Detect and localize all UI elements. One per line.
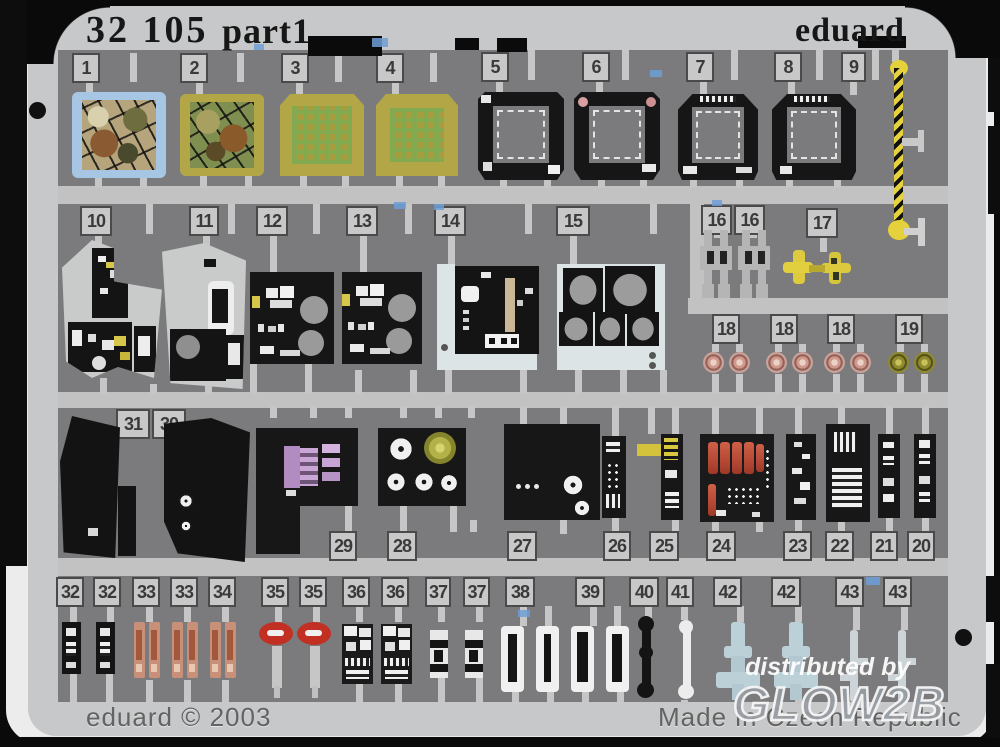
label-37: 37 bbox=[463, 577, 490, 607]
part-40-detail bbox=[637, 682, 654, 698]
blue-speck bbox=[650, 70, 662, 77]
frame-stem bbox=[795, 406, 802, 434]
part-19-detail bbox=[914, 352, 935, 373]
part-27-detail bbox=[560, 472, 586, 498]
part-18c-detail bbox=[824, 352, 845, 373]
part-17-detail bbox=[809, 265, 825, 272]
edge-mark bbox=[986, 664, 1000, 740]
part-16a-detail bbox=[720, 251, 727, 264]
part-14-detail bbox=[461, 286, 479, 302]
brand-logo: eduard bbox=[795, 12, 905, 50]
frame-stem bbox=[345, 406, 352, 418]
part-2-detail bbox=[190, 102, 254, 168]
label-13: 13 bbox=[346, 206, 378, 236]
part-14 bbox=[455, 266, 539, 354]
part-38a bbox=[501, 626, 524, 692]
label-8: 8 bbox=[774, 52, 802, 82]
frame-stem bbox=[834, 180, 841, 188]
frame-stem bbox=[270, 406, 277, 418]
part-11-detail bbox=[204, 259, 216, 267]
part-22-detail bbox=[832, 468, 862, 508]
label-42: 42 bbox=[713, 577, 742, 607]
registration-dot bbox=[29, 102, 46, 119]
part-26-detail bbox=[606, 494, 620, 508]
frame-stem bbox=[560, 406, 567, 424]
frame-stem bbox=[146, 204, 153, 234]
part-41 bbox=[678, 620, 695, 700]
part-36a bbox=[342, 624, 373, 684]
frame-stem bbox=[435, 406, 442, 418]
frame-stem bbox=[356, 606, 363, 622]
part-6 bbox=[574, 92, 660, 180]
label-11: 11 bbox=[189, 206, 219, 236]
part-13-detail bbox=[360, 298, 382, 306]
part-26-detail bbox=[606, 462, 620, 488]
frame-stem bbox=[342, 176, 349, 188]
part-10-detail bbox=[138, 336, 150, 356]
frame-stem bbox=[528, 50, 535, 80]
frame-stem bbox=[400, 506, 407, 532]
part-17-detail bbox=[831, 258, 837, 264]
part-26-detail bbox=[606, 442, 620, 452]
label-12: 12 bbox=[256, 206, 288, 236]
part-24-detail bbox=[726, 486, 760, 504]
part-9-detail bbox=[918, 130, 924, 152]
part-28-detail bbox=[424, 432, 456, 464]
part-36a-detail bbox=[346, 670, 369, 679]
label-20: 20 bbox=[907, 531, 935, 561]
label-18: 18 bbox=[827, 314, 855, 344]
frame-stem bbox=[438, 606, 445, 622]
label-32: 32 bbox=[93, 577, 121, 607]
frame-stem bbox=[799, 374, 806, 394]
label-33: 33 bbox=[132, 577, 160, 607]
part-29b bbox=[256, 506, 300, 554]
frame-stem bbox=[70, 606, 77, 622]
frame-stem bbox=[476, 678, 483, 702]
part-5-detail bbox=[483, 162, 492, 171]
part-14-detail bbox=[505, 278, 515, 332]
part-23-detail bbox=[794, 442, 802, 447]
photo-etch-sheet-photo: 1234567891011121314151616171818181931302… bbox=[0, 0, 1000, 747]
part-13-detail bbox=[358, 324, 366, 330]
part-3-detail bbox=[292, 106, 352, 164]
label-42: 42 bbox=[771, 577, 801, 607]
label-18: 18 bbox=[712, 314, 740, 344]
frame-stem bbox=[222, 680, 229, 702]
frame-stem bbox=[130, 53, 137, 82]
part-7-detail bbox=[736, 167, 752, 173]
part-10 bbox=[62, 240, 162, 378]
part-32b-detail bbox=[100, 662, 110, 668]
part-33a-detail bbox=[151, 630, 157, 660]
part-37b-detail bbox=[469, 650, 478, 662]
part-6-detail bbox=[642, 164, 656, 172]
frame-stem bbox=[525, 204, 532, 234]
part-13-detail bbox=[342, 294, 350, 306]
frame-stem bbox=[396, 176, 403, 188]
label-38: 38 bbox=[505, 577, 535, 607]
part-35b-detail bbox=[312, 686, 318, 698]
part-37b-detail bbox=[465, 640, 483, 648]
part-11 bbox=[162, 243, 246, 389]
blue-speck bbox=[712, 200, 722, 206]
label-14: 14 bbox=[434, 206, 466, 236]
part-25-detail bbox=[664, 438, 678, 460]
frame-stem bbox=[222, 606, 229, 622]
part-35b-detail bbox=[305, 630, 322, 636]
frame-stem bbox=[575, 370, 582, 394]
frame-stem bbox=[146, 606, 153, 622]
part-18b-detail bbox=[792, 352, 813, 373]
label-21: 21 bbox=[870, 531, 898, 561]
frame-stem bbox=[95, 178, 102, 188]
frame-stem bbox=[617, 692, 624, 702]
part-13-detail bbox=[350, 344, 364, 352]
part-21-detail bbox=[883, 494, 894, 502]
label-10: 10 bbox=[80, 206, 112, 236]
part-26 bbox=[602, 436, 626, 518]
edge-mark bbox=[988, 126, 1000, 214]
part-28-detail bbox=[386, 434, 416, 464]
part-30 bbox=[164, 418, 250, 562]
frame-stem bbox=[300, 176, 307, 188]
part-24-detail bbox=[708, 442, 718, 474]
frame-stem bbox=[853, 606, 860, 630]
part-16b-detail bbox=[740, 284, 752, 298]
frame-stem bbox=[582, 692, 589, 702]
part-20-detail bbox=[919, 440, 930, 448]
part-4 bbox=[376, 94, 458, 176]
part-41-detail bbox=[683, 627, 691, 691]
part-40 bbox=[636, 616, 656, 700]
frame-stem bbox=[547, 692, 554, 702]
part-13-detail bbox=[370, 284, 384, 296]
label-43: 43 bbox=[883, 577, 912, 607]
part-25 bbox=[661, 434, 683, 520]
label-19: 19 bbox=[895, 314, 923, 344]
frame-notch bbox=[308, 36, 382, 56]
part-7-detail bbox=[692, 107, 744, 163]
part-24-detail bbox=[744, 442, 754, 474]
part-38b-detail bbox=[544, 634, 551, 682]
part-31b bbox=[118, 486, 136, 556]
part-33a-detail bbox=[136, 664, 142, 672]
part-7-detail bbox=[683, 166, 697, 174]
frame-stem bbox=[886, 406, 893, 434]
part-33a bbox=[134, 622, 161, 680]
part-20 bbox=[914, 434, 936, 518]
part-10-detail bbox=[120, 352, 130, 360]
part-16b-detail bbox=[745, 251, 752, 264]
part-36b-detail bbox=[383, 626, 396, 636]
frame-stem bbox=[788, 80, 795, 95]
part-28 bbox=[378, 428, 466, 506]
label-28: 28 bbox=[387, 531, 417, 561]
part-10-detail bbox=[102, 340, 114, 350]
part-32a-detail bbox=[66, 662, 76, 668]
part-1-detail bbox=[82, 100, 156, 170]
photo-backdrop-top bbox=[0, 0, 1000, 6]
part-29-detail bbox=[322, 458, 340, 467]
frame-stem bbox=[405, 204, 412, 234]
part-7-detail bbox=[700, 96, 736, 102]
part-14-detail bbox=[489, 338, 495, 344]
frame-rail bbox=[58, 558, 948, 576]
label-31: 31 bbox=[116, 409, 150, 439]
part-25a bbox=[637, 444, 662, 456]
part-5-detail bbox=[481, 95, 491, 103]
part-14-detail bbox=[463, 310, 469, 314]
label-40: 40 bbox=[629, 577, 659, 607]
frame-stem bbox=[237, 53, 244, 82]
label-25: 25 bbox=[649, 531, 679, 561]
label-34: 34 bbox=[208, 577, 236, 607]
watermark-glow2b: GLOW2B bbox=[733, 676, 945, 731]
part-8-detail bbox=[780, 166, 792, 174]
label-35: 35 bbox=[261, 577, 289, 607]
part-32b-detail bbox=[100, 642, 110, 656]
blue-speck bbox=[518, 610, 530, 617]
part-34 bbox=[210, 622, 237, 680]
frame-stem bbox=[392, 82, 399, 94]
part-33b-detail bbox=[174, 630, 180, 660]
frame-stem bbox=[345, 506, 352, 532]
frame-stem bbox=[922, 518, 929, 532]
part-10-detail bbox=[110, 270, 120, 278]
part-36b-detail bbox=[384, 658, 409, 666]
part-27 bbox=[504, 424, 600, 520]
label-9: 9 bbox=[841, 52, 866, 82]
part-22 bbox=[826, 424, 870, 522]
blue-speck bbox=[394, 202, 406, 209]
frame-stem bbox=[833, 374, 840, 394]
part-37a-detail bbox=[434, 650, 443, 662]
part-2 bbox=[180, 94, 264, 176]
part-6-detail bbox=[589, 106, 645, 163]
part-23-detail bbox=[802, 454, 810, 459]
part-21-detail bbox=[883, 456, 894, 465]
frame-stem bbox=[598, 180, 605, 188]
frame-stem bbox=[545, 606, 552, 626]
frame-stem bbox=[512, 692, 519, 702]
frame-stem bbox=[360, 236, 367, 274]
part-24-detail bbox=[708, 484, 716, 516]
frame-stem bbox=[520, 370, 527, 394]
part-27-detail bbox=[516, 484, 521, 489]
part-12-detail bbox=[280, 350, 300, 356]
part-38b bbox=[536, 626, 559, 692]
part-16b bbox=[738, 230, 772, 300]
frame-stem bbox=[640, 180, 647, 188]
label-6: 6 bbox=[582, 52, 610, 82]
frame-stem bbox=[786, 180, 793, 188]
part-29-detail bbox=[284, 446, 300, 488]
part-16a-detail bbox=[700, 246, 732, 270]
part-32a-detail bbox=[66, 642, 76, 656]
part-37b bbox=[465, 630, 483, 678]
part-16a-detail bbox=[707, 251, 714, 264]
part-5 bbox=[478, 92, 564, 180]
part-16b-detail bbox=[738, 246, 770, 270]
part-8 bbox=[772, 94, 856, 180]
frame-stem bbox=[184, 606, 191, 622]
frame-stem bbox=[500, 180, 507, 188]
part-21 bbox=[878, 434, 900, 518]
part-17-detail bbox=[833, 272, 839, 280]
part-37a bbox=[430, 630, 448, 678]
part-13-detail bbox=[368, 322, 374, 330]
part-12-detail bbox=[268, 326, 276, 332]
part-39a bbox=[571, 626, 594, 692]
frame-stem bbox=[468, 406, 475, 418]
frame-stem bbox=[612, 518, 619, 532]
part-15-detail bbox=[649, 352, 656, 359]
part-18c-detail bbox=[850, 352, 871, 373]
frame-stem bbox=[850, 80, 857, 95]
frame-stem bbox=[450, 506, 457, 532]
part-36b-detail bbox=[399, 640, 410, 650]
part-36b-detail bbox=[385, 642, 395, 651]
part-36a-detail bbox=[360, 640, 371, 650]
part-13-detail bbox=[356, 286, 368, 296]
frame-stem bbox=[614, 606, 621, 626]
part-12-detail bbox=[266, 288, 278, 298]
part-8-detail bbox=[794, 96, 830, 102]
part-34-detail bbox=[227, 664, 233, 672]
part-16a bbox=[700, 230, 734, 300]
part-10-detail bbox=[100, 288, 108, 294]
part-27-detail bbox=[525, 484, 530, 489]
frame-notch bbox=[497, 38, 527, 52]
frame-stem bbox=[775, 374, 782, 394]
frame-stem bbox=[448, 236, 455, 266]
part-23-detail bbox=[794, 498, 806, 504]
frame-stem bbox=[690, 180, 697, 188]
part-14-backing-detail bbox=[441, 344, 448, 351]
frame-rail bbox=[58, 186, 948, 204]
part-12-detail bbox=[280, 286, 294, 298]
part-29-detail bbox=[322, 472, 340, 481]
part-9-detail bbox=[894, 68, 903, 230]
photo-backdrop-bottom bbox=[0, 737, 1000, 747]
frame-stem bbox=[228, 204, 235, 234]
frame-stem bbox=[756, 406, 763, 434]
label-4: 4 bbox=[376, 53, 404, 83]
part-24-detail bbox=[716, 510, 726, 516]
part-33b-detail bbox=[189, 630, 195, 660]
part-39b bbox=[606, 626, 629, 692]
part-21-detail bbox=[883, 478, 894, 486]
part-10-detail bbox=[88, 334, 96, 342]
frame-stem bbox=[650, 204, 657, 234]
part-14-detail bbox=[525, 288, 533, 294]
part-33b bbox=[172, 622, 199, 680]
frame-stem bbox=[476, 606, 483, 622]
part-13-detail bbox=[388, 294, 416, 322]
backdrop-corner-tr bbox=[905, 0, 1000, 58]
part-15-detail bbox=[605, 266, 655, 314]
frame-stem bbox=[922, 406, 929, 434]
part-12 bbox=[250, 272, 334, 364]
part-1 bbox=[72, 92, 166, 178]
part-36b bbox=[381, 624, 412, 684]
part-10-detail bbox=[114, 336, 126, 346]
frame-stem bbox=[570, 236, 577, 266]
label-39: 39 bbox=[575, 577, 605, 607]
part-28-detail bbox=[384, 470, 408, 494]
part-18a bbox=[703, 350, 751, 376]
label-35: 35 bbox=[299, 577, 327, 607]
label-43: 43 bbox=[835, 577, 864, 607]
label-7: 7 bbox=[686, 52, 714, 82]
part-34-detail bbox=[212, 630, 218, 660]
part-28-detail bbox=[412, 470, 436, 494]
part-24 bbox=[700, 434, 774, 522]
part-35a bbox=[259, 622, 293, 698]
frame-stem bbox=[622, 50, 629, 80]
part-13 bbox=[342, 272, 422, 364]
frame-stem bbox=[681, 606, 688, 620]
label-22: 22 bbox=[825, 531, 854, 561]
part-35b bbox=[297, 622, 331, 698]
frame-stem bbox=[620, 370, 627, 394]
part-34-detail bbox=[212, 664, 218, 672]
frame-stem bbox=[438, 176, 445, 188]
frame-stem bbox=[731, 50, 738, 80]
part-15-detail bbox=[595, 312, 625, 346]
part-32a bbox=[62, 622, 81, 674]
part-15 bbox=[557, 264, 665, 370]
part-35a-detail bbox=[272, 646, 282, 688]
label-23: 23 bbox=[783, 531, 812, 561]
label-41: 41 bbox=[666, 577, 694, 607]
part-14-detail bbox=[463, 326, 469, 330]
part-12-detail bbox=[270, 300, 292, 308]
part-29 bbox=[256, 428, 358, 506]
frame-stem bbox=[672, 406, 679, 434]
part-20-detail bbox=[919, 492, 930, 502]
frame-stem bbox=[560, 520, 567, 534]
label-15: 15 bbox=[556, 206, 590, 236]
frame-stem bbox=[106, 674, 113, 702]
part-title: part1 bbox=[222, 10, 311, 52]
frame-rail bbox=[688, 298, 948, 314]
frame-stem bbox=[700, 80, 707, 95]
part-31-detail bbox=[88, 528, 98, 536]
part-12-detail bbox=[258, 324, 264, 332]
frame-stem bbox=[395, 606, 402, 622]
part-36a-detail bbox=[344, 626, 357, 636]
frame-stem bbox=[590, 606, 597, 626]
part-5-detail bbox=[493, 106, 549, 163]
frame-stem bbox=[305, 364, 312, 394]
part-19-detail bbox=[888, 352, 909, 373]
frame-stem bbox=[872, 50, 879, 80]
part-5-detail bbox=[548, 165, 560, 174]
label-29: 29 bbox=[329, 531, 357, 561]
part-39a-detail bbox=[577, 632, 588, 682]
frame-stem bbox=[712, 406, 719, 434]
part-10-detail bbox=[72, 330, 82, 346]
part-33a-detail bbox=[136, 630, 142, 660]
part-40-detail bbox=[639, 646, 653, 659]
part-14-backing-2 bbox=[437, 352, 537, 370]
frame-stem bbox=[150, 384, 157, 394]
label-32: 32 bbox=[56, 577, 84, 607]
part-30-detail bbox=[180, 520, 192, 532]
part-16a-detail bbox=[702, 284, 714, 298]
